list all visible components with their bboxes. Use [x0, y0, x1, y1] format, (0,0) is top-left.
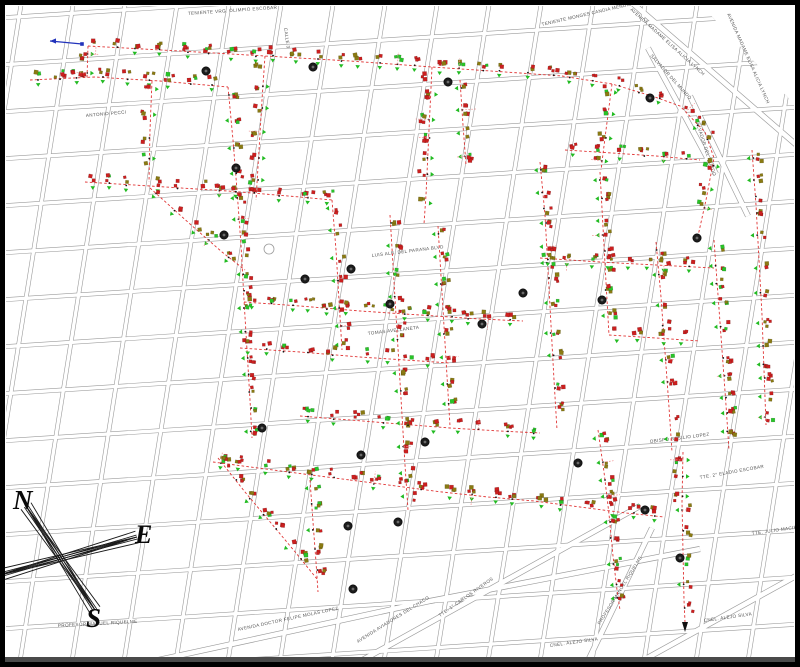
pole-symbol	[605, 284, 613, 293]
pole-symbol	[598, 475, 614, 486]
pole-symbol	[544, 330, 561, 336]
transformer-icon	[344, 522, 352, 530]
pole-symbol	[422, 151, 434, 161]
transformer-icon	[641, 506, 649, 514]
feeder-line	[601, 84, 612, 170]
transformer-icon	[394, 518, 402, 526]
street-label: LUIS ALB. DEL PARANA BLVD	[372, 244, 445, 258]
pole-symbol	[225, 118, 241, 124]
pole-symbol	[758, 411, 775, 422]
compass-label-east: E	[135, 522, 152, 548]
pole-symbol	[595, 192, 611, 201]
pole-symbol	[98, 68, 110, 84]
pole-symbol	[497, 63, 504, 77]
feeder-line	[256, 56, 265, 200]
pole-symbol	[684, 601, 695, 613]
pole-symbol	[747, 173, 763, 183]
feeder-line	[310, 480, 318, 592]
compass-label-south: S	[86, 605, 101, 632]
pole-symbol	[241, 355, 256, 364]
pole-symbol	[304, 297, 315, 312]
pole-symbol	[699, 183, 714, 195]
network-map-canvas: TENIENTE VRG. OLIMPIO ESCOBARTENIENTE MO…	[5, 5, 795, 662]
compass-rose	[5, 503, 139, 614]
pole-symbol	[635, 84, 644, 94]
pole-symbol	[364, 302, 375, 308]
pole-symbol	[370, 472, 381, 491]
streets-layer	[5, 5, 795, 662]
pole-symbol	[434, 277, 451, 287]
pole-symbol	[385, 348, 395, 365]
pole-symbol	[439, 355, 458, 363]
feeder-line	[565, 150, 700, 160]
pole-symbol	[659, 354, 675, 364]
pole-symbol	[758, 372, 774, 382]
pole-symbol	[263, 459, 270, 475]
feeder-line	[240, 348, 450, 363]
transformer-icon	[646, 94, 654, 102]
pole-symbol	[235, 455, 244, 471]
pole-symbol	[675, 503, 692, 512]
map-frame: TENIENTE VRG. OLIMPIO ESCOBARTENIENTE MO…	[0, 0, 800, 667]
pole-symbol	[709, 264, 726, 271]
pole-symbol	[539, 220, 552, 229]
transformer-icon	[347, 265, 355, 273]
pole-symbol	[396, 440, 413, 453]
pole-symbol	[122, 69, 131, 86]
pole-symbol	[675, 415, 680, 420]
pole-symbol	[504, 422, 514, 438]
pole-symbol	[616, 77, 624, 93]
pole-symbol	[590, 156, 609, 164]
pole-symbol	[133, 44, 141, 56]
pole-symbol	[249, 130, 266, 137]
pole-symbol	[756, 209, 763, 216]
pole-symbol	[650, 505, 656, 522]
pole-symbol	[275, 522, 285, 530]
pole-symbol	[306, 528, 322, 533]
pole-symbol	[612, 327, 619, 344]
pole-symbol	[250, 407, 257, 412]
transformer-icon	[421, 438, 429, 446]
transformer-icon	[444, 78, 452, 86]
pole-symbol	[248, 174, 265, 185]
pole-symbol	[394, 52, 404, 71]
pole-symbol	[267, 297, 276, 305]
pole-symbol	[105, 173, 111, 190]
pole-symbol	[403, 354, 413, 359]
transformer-icon	[519, 289, 527, 297]
pole-symbol	[659, 329, 666, 346]
feeder-line	[460, 80, 466, 165]
frame-bottom-strip	[5, 657, 795, 662]
pole-symbol	[661, 379, 677, 386]
pole-symbol	[681, 151, 690, 160]
transformer-icon	[676, 554, 684, 562]
pole-symbol	[554, 382, 565, 390]
transformer-icon	[220, 231, 228, 239]
plaza-circle	[264, 244, 274, 254]
pole-symbol	[585, 500, 596, 507]
pole-symbol	[457, 58, 466, 74]
pole-symbol	[756, 318, 772, 328]
transformer-icon	[309, 63, 317, 71]
pole-symbol	[253, 62, 262, 68]
pole-symbol	[399, 477, 410, 484]
pole-symbol	[317, 567, 327, 575]
transformer-icon	[574, 459, 582, 467]
pole-symbol	[683, 256, 695, 273]
pole-symbol	[328, 468, 335, 479]
transformer-icon	[232, 164, 240, 172]
transformer-icon	[598, 296, 606, 304]
pole-symbol	[755, 196, 762, 203]
pole-symbol	[322, 302, 333, 316]
street-label: TOMAS AVELLANETA	[368, 325, 421, 336]
pole-symbol	[442, 398, 457, 407]
pole-symbol	[323, 190, 335, 206]
pole-symbol	[307, 347, 315, 353]
pole-symbol	[286, 464, 297, 479]
pole-symbol	[722, 356, 733, 364]
pole-symbol	[531, 428, 536, 441]
pole-symbol	[592, 431, 609, 442]
pole-symbol	[673, 492, 689, 502]
transformer-icon	[357, 451, 365, 459]
transformer-icon	[349, 585, 357, 593]
feeder-line	[390, 215, 408, 510]
compass-label-north: N	[13, 487, 33, 514]
pole-symbol	[596, 219, 609, 227]
feeder-line	[609, 335, 700, 341]
transformer-icon	[478, 320, 486, 328]
pole-symbol	[34, 70, 41, 87]
pole-symbol	[289, 299, 297, 312]
pole-symbol	[417, 169, 434, 177]
pole-symbol	[243, 285, 252, 297]
pole-symbol	[456, 418, 463, 434]
pole-symbol	[365, 347, 370, 364]
pole-symbol	[311, 501, 322, 509]
pole-symbol	[123, 176, 129, 193]
transformer-icon	[693, 234, 701, 242]
pole-symbol	[325, 206, 338, 215]
pole-symbol	[425, 89, 438, 99]
pole-symbol	[679, 330, 688, 346]
street-label: TTE. JULIO MACIEL	[751, 524, 795, 536]
pole-symbol	[262, 341, 272, 356]
pole-symbol	[412, 56, 420, 72]
pole-symbol	[242, 338, 252, 355]
transformer-icon	[386, 300, 394, 308]
pole-symbol	[141, 137, 151, 144]
transformer-icon	[202, 67, 210, 75]
transformer-icon	[301, 275, 309, 283]
transformer-icon	[258, 424, 266, 432]
pole-symbol	[290, 47, 301, 64]
pole-symbol	[353, 53, 362, 69]
pole-symbol	[140, 110, 156, 120]
street-label: TTE. 2° ELADIO ESCOBAR	[699, 464, 764, 480]
pole-symbol	[714, 320, 730, 332]
pole-symbol	[245, 247, 250, 257]
pole-symbol	[670, 456, 690, 464]
pole-symbol	[596, 460, 613, 468]
